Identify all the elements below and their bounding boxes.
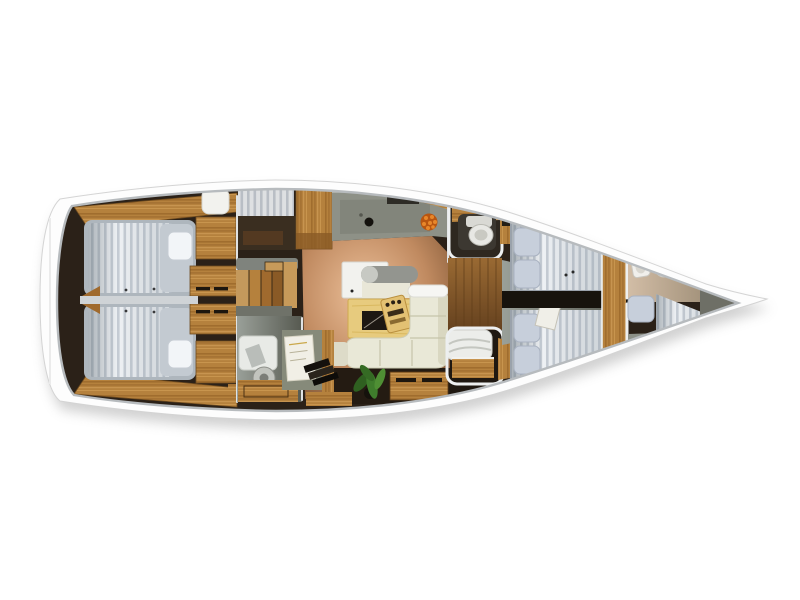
- fruit-bowl: [421, 214, 438, 231]
- locker-handle: [196, 310, 210, 313]
- cabin-divider-wall: [80, 296, 198, 304]
- interior: [40, 170, 760, 430]
- galley-sink: [365, 218, 374, 227]
- pillow: [168, 340, 192, 368]
- pillow: [628, 296, 654, 322]
- locker: [190, 266, 237, 296]
- wardrobe: [196, 341, 236, 383]
- stair-landing-bottom: [236, 306, 292, 316]
- chart-desk: [282, 330, 339, 392]
- pillow: [514, 314, 540, 342]
- pillow: [514, 228, 540, 256]
- pillow: [168, 232, 192, 260]
- pillow: [514, 346, 540, 374]
- yacht-floorplan: [0, 0, 800, 600]
- pillow: [514, 260, 540, 288]
- locker-handle: [214, 287, 228, 290]
- aft-cabin-port: [74, 189, 237, 296]
- berth-drawers: [452, 358, 494, 378]
- molded-seat: [446, 330, 492, 360]
- wardrobe: [196, 217, 236, 259]
- locker-handle: [196, 287, 210, 290]
- locker: [190, 304, 237, 334]
- locker-handle: [214, 310, 228, 313]
- sofa-armrest-top: [408, 285, 448, 297]
- yacht-floorplan-canvas: [0, 0, 800, 600]
- aft-cabin-starboard: [74, 304, 252, 407]
- faucet: [359, 213, 363, 217]
